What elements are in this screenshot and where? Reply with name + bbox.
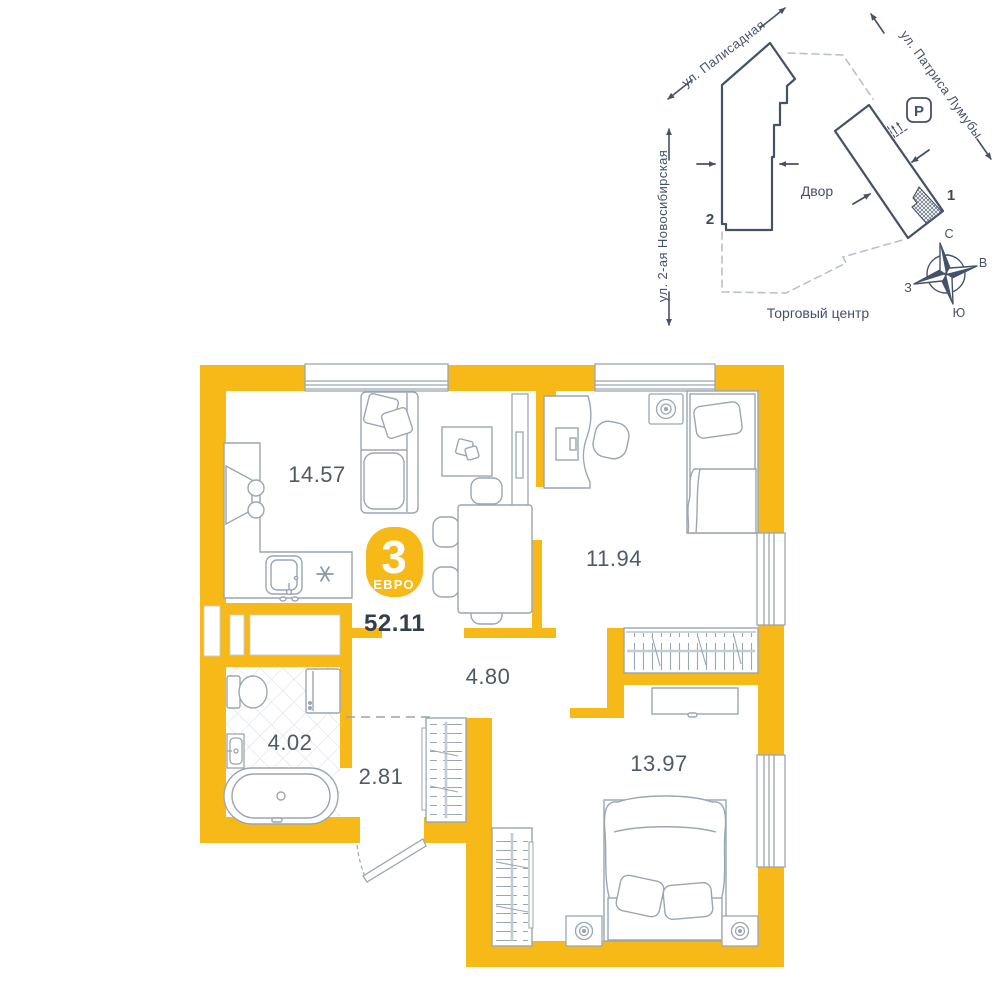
total-area: 52.11 bbox=[364, 610, 425, 637]
area-bedroom-1: 11.94 bbox=[586, 546, 642, 571]
mall-label: Торговый центр bbox=[767, 305, 870, 321]
coffee-table bbox=[442, 427, 492, 476]
plan-canvas: P ул. Палисадная ул. Патриса bbox=[0, 0, 1000, 1000]
parking-label: P bbox=[914, 103, 924, 120]
bathroom-sink bbox=[227, 734, 244, 768]
compass-e: В bbox=[979, 256, 987, 270]
floorplan-page: P ул. Палисадная ул. Патриса bbox=[0, 0, 1000, 1000]
compass-n: С bbox=[944, 227, 953, 241]
hall-wardrobe bbox=[422, 718, 466, 822]
entrance-door bbox=[357, 839, 426, 882]
washing-machine bbox=[306, 669, 340, 713]
building-2-outline bbox=[722, 43, 795, 230]
badge-rooms-count: 3 bbox=[381, 531, 407, 583]
kitchen-sink bbox=[266, 556, 302, 601]
single-bed bbox=[687, 391, 758, 533]
floor-plan: 14.57 11.94 4.80 4.02 2.81 13.97 3 ЕВРО … bbox=[200, 364, 785, 967]
window-bedroom-1 bbox=[595, 364, 715, 391]
building-2-number: 2 bbox=[706, 211, 714, 228]
parking-icon: P bbox=[907, 98, 931, 122]
site-plan: P ул. Палисадная ул. Патриса bbox=[655, 8, 991, 325]
tv-panel bbox=[512, 394, 528, 512]
area-kitchen-living: 14.57 bbox=[288, 462, 346, 487]
wardrobe-bedroom-1 bbox=[624, 628, 758, 673]
toilet bbox=[227, 676, 267, 708]
double-bed bbox=[604, 796, 726, 941]
area-bedroom-2: 13.97 bbox=[630, 751, 688, 776]
nightstand-left bbox=[566, 916, 602, 946]
window-right-upper bbox=[757, 533, 785, 625]
window-living bbox=[305, 364, 448, 391]
nightstand-right bbox=[722, 916, 758, 946]
street-left-label: ул. 2-ая Новосибирская bbox=[655, 150, 670, 302]
rooms-badge: 3 ЕВРО bbox=[366, 527, 423, 597]
building-1-number: 1 bbox=[947, 187, 955, 204]
building-1-outline bbox=[835, 105, 943, 238]
badge-type: ЕВРО bbox=[373, 577, 414, 592]
area-hall: 2.81 bbox=[359, 764, 404, 789]
window-bedroom-2 bbox=[757, 755, 785, 867]
area-corridor: 4.80 bbox=[466, 664, 511, 689]
bathtub bbox=[224, 768, 338, 824]
compass-w: З bbox=[904, 281, 912, 295]
area-bathroom: 4.02 bbox=[268, 730, 313, 755]
sofa bbox=[361, 392, 418, 513]
wardrobe-bedroom-2 bbox=[492, 828, 533, 946]
street-right-label: ул. Патриса Лумубы bbox=[897, 27, 985, 141]
courtyard-label: Двор bbox=[801, 183, 834, 199]
ceiling-light-bedroom-1 bbox=[649, 394, 683, 424]
dresser bbox=[652, 688, 738, 717]
compass-icon: С В З Ю bbox=[904, 227, 987, 320]
desk-chair bbox=[591, 419, 632, 461]
compass-s: Ю bbox=[953, 306, 966, 320]
desk bbox=[544, 396, 591, 488]
